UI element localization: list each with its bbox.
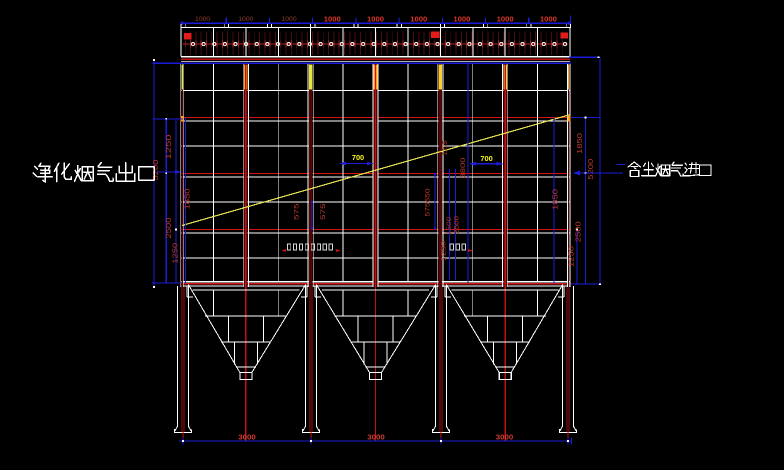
svg-text:1000: 1000 [367, 14, 384, 23]
svg-text:1250: 1250 [173, 243, 180, 264]
svg-text:3000: 3000 [496, 433, 514, 442]
svg-text:575: 575 [320, 203, 327, 220]
svg-text:1000: 1000 [410, 14, 427, 23]
svg-text:575650: 575650 [425, 188, 432, 217]
svg-text:1000: 1000 [453, 14, 470, 23]
svg-text:5200: 5200 [588, 159, 595, 180]
svg-text:1000: 1000 [540, 14, 557, 23]
svg-text:1000: 1000 [497, 14, 514, 23]
svg-text:1250: 1250 [569, 246, 576, 267]
svg-text:1250: 1250 [441, 240, 448, 261]
svg-text:1250: 1250 [166, 134, 173, 159]
svg-text:1225: 1225 [442, 140, 449, 156]
svg-text:1850: 1850 [185, 188, 192, 209]
svg-text:575: 575 [294, 203, 301, 220]
svg-text:2500: 2500 [166, 217, 173, 238]
svg-text:700: 700 [352, 153, 364, 162]
svg-text:1000: 1000 [238, 16, 253, 23]
svg-text:1000: 1000 [281, 16, 296, 23]
svg-text:1000: 1000 [324, 14, 341, 23]
svg-text:1500: 1500 [446, 216, 453, 234]
svg-text:3000: 3000 [367, 433, 385, 442]
svg-text:3800: 3800 [460, 157, 467, 178]
svg-text:2500: 2500 [453, 215, 460, 233]
svg-text:1000: 1000 [195, 16, 210, 23]
svg-text:2500: 2500 [576, 221, 583, 242]
svg-text:1850: 1850 [577, 133, 584, 154]
svg-text:700: 700 [480, 154, 492, 163]
svg-text:3000: 3000 [238, 433, 256, 442]
svg-text:1850: 1850 [553, 189, 560, 210]
